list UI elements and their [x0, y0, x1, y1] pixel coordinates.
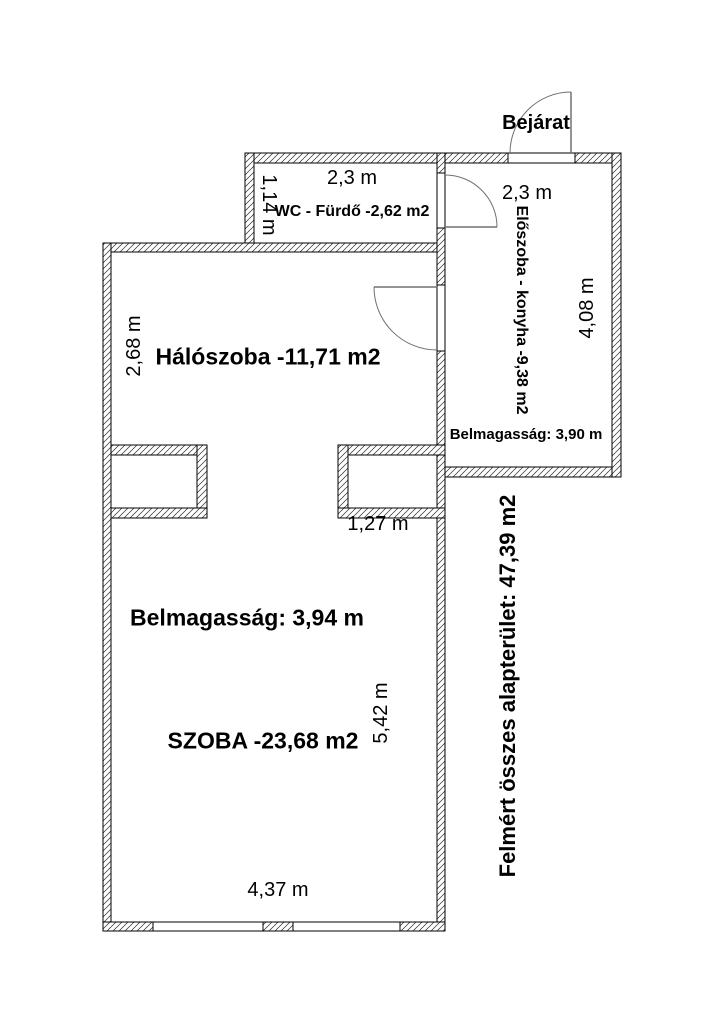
door-opening	[437, 285, 445, 351]
bedroom-room-label: Hálószoba -11,71 m2	[156, 344, 381, 369]
window	[293, 922, 400, 931]
hallway-length-dimension: 4,08 m	[576, 277, 598, 338]
living-room-width-dimension: 4,37 m	[247, 879, 308, 901]
living-room-length-dimension: 5,42 m	[370, 682, 392, 743]
hallway-width-dimension: 2,3 m	[502, 182, 552, 204]
wall-segment	[197, 445, 207, 518]
wall-segment	[400, 922, 445, 931]
window	[153, 922, 263, 931]
floor-plan-drawing	[0, 0, 723, 1024]
living-room-label: SZOBA -23,68 m2	[168, 728, 359, 753]
wall-segment	[445, 467, 612, 477]
walls	[103, 153, 621, 931]
bedroom-depth-dimension: 2,68 m	[123, 315, 145, 376]
wall-segment	[437, 153, 445, 173]
wall-segment	[245, 153, 508, 163]
wall-segment	[103, 922, 153, 931]
floor-plan: Bejárat 2,3 m 1,14 m WC - Fürdő -2,62 m2…	[0, 0, 723, 1024]
wall-segment	[111, 508, 207, 518]
bedroom-door	[374, 285, 445, 351]
wall-segment	[245, 153, 254, 252]
door-swing-arc	[445, 175, 497, 227]
living-room-ceiling-height: Belmagasság: 3,94 m	[130, 605, 364, 630]
door-opening	[437, 173, 445, 228]
wall-segment	[437, 351, 445, 931]
hallway-ceiling-height: Belmagasság: 3,90 m	[450, 427, 603, 444]
wc-door	[437, 173, 497, 228]
wall-segment	[263, 922, 293, 931]
wall-segment	[437, 228, 445, 285]
passage-width-dimension: 1,27 m	[347, 513, 408, 535]
door-opening	[508, 153, 575, 163]
wc-width-dimension: 2,3 m	[327, 167, 377, 189]
wall-segment	[103, 243, 445, 252]
door-swing-arc	[374, 287, 437, 350]
wall-segment	[338, 445, 445, 455]
hallway-room-label: Előszoba - konyha -9,38 m2	[512, 206, 530, 415]
wall-segment	[103, 243, 111, 931]
entrance-label: Bejárat	[502, 112, 570, 134]
wall-segment	[111, 445, 207, 455]
wall-segment	[338, 445, 348, 518]
total-floor-area-label: Felmért összes alapterület: 47,39 m2	[496, 495, 520, 878]
wall-segment	[612, 153, 621, 477]
wc-room-label: WC - Fürdő -2,62 m2	[275, 203, 430, 221]
